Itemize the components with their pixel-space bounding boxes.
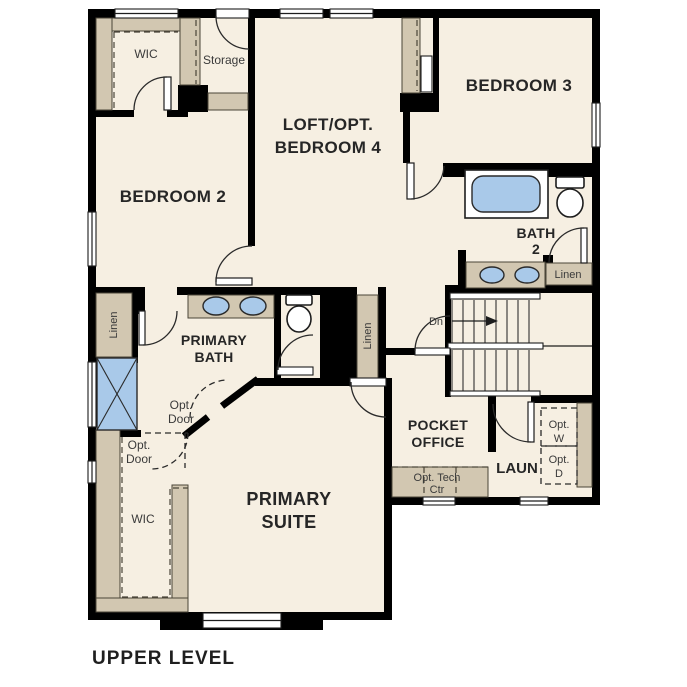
linen-left-label: Linen	[108, 312, 120, 339]
toilet-bath2	[556, 177, 584, 217]
sink	[515, 267, 539, 283]
window	[88, 362, 96, 427]
window	[88, 461, 96, 483]
tech-center-label-line1: Opt. Tech	[414, 472, 461, 484]
plan-title: UPPER LEVEL	[92, 648, 235, 669]
sink	[240, 297, 266, 315]
opt-dryer-label-line1: Opt.	[549, 454, 570, 466]
wic-upper-label: WIC	[134, 47, 158, 61]
window	[280, 9, 323, 18]
window	[115, 9, 178, 18]
stair-rail-mid	[448, 343, 543, 349]
stair-rail-bottom	[450, 391, 540, 396]
sink	[203, 297, 229, 315]
loft-label-line2: BEDROOM 4	[275, 138, 382, 157]
primary-suite-label-line1: PRIMARY	[246, 489, 331, 509]
pocket-office-label-line1: POCKET	[408, 417, 468, 433]
wic-lower-label: WIC	[131, 512, 155, 526]
stair-down-label: Dn	[429, 316, 443, 328]
bath2-label-line1: BATH	[516, 225, 555, 241]
window	[520, 497, 548, 505]
tech-center-label-line2: Ctr	[430, 484, 445, 496]
shower	[97, 358, 137, 430]
bath2-linen-label: Linen	[555, 269, 582, 281]
opt-door-lower-line1: Opt.	[128, 438, 151, 452]
opt-door-upper-line2: Door	[168, 412, 194, 426]
bedroom2-label: BEDROOM 2	[120, 187, 227, 206]
window	[88, 212, 96, 266]
linen-mid-label: Linen	[362, 323, 374, 350]
laundry-label: LAUN	[496, 460, 538, 477]
opt-door-upper-line1: Opt.	[170, 398, 193, 412]
loft-label-line1: LOFT/OPT.	[283, 115, 373, 134]
floor-plan-page: WIC Storage LOFT/OPT. BEDROOM 4 BEDROOM …	[0, 0, 687, 687]
closet-door-panel	[421, 56, 432, 92]
opt-washer-label-line1: Opt.	[549, 419, 570, 431]
stair-rail-top	[450, 293, 540, 299]
bathtub-basin	[472, 176, 540, 212]
floor-plan-drawing: WIC Storage LOFT/OPT. BEDROOM 4 BEDROOM …	[0, 0, 687, 687]
pocket-office-label-line2: OFFICE	[411, 434, 464, 450]
sink	[480, 267, 504, 283]
bath2-label-line2: 2	[532, 241, 540, 257]
window	[203, 613, 281, 628]
wic-lower-shelf-left	[96, 430, 120, 612]
window	[330, 9, 373, 18]
storage-shelf-low	[208, 93, 248, 110]
wic-upper-shelf-left	[96, 18, 112, 110]
opt-dryer-label-line2: D	[555, 468, 563, 480]
laundry-counter	[577, 403, 592, 487]
storage-label: Storage	[203, 53, 245, 67]
toilet-primary	[286, 295, 312, 332]
primary-suite-label-line2: SUITE	[261, 512, 316, 532]
opt-door-lower-line2: Door	[126, 452, 152, 466]
window	[423, 497, 455, 505]
wic-lower-shelf-bottom	[96, 598, 188, 612]
primary-bath-label-line1: PRIMARY	[181, 332, 248, 348]
opt-washer-label-line2: W	[554, 433, 565, 445]
window	[592, 103, 600, 147]
primary-bath-label-line2: BATH	[194, 349, 233, 365]
bedroom3-label: BEDROOM 3	[466, 76, 573, 95]
wic-lower-shelf-right	[172, 485, 188, 598]
storage-shelf	[180, 18, 200, 85]
